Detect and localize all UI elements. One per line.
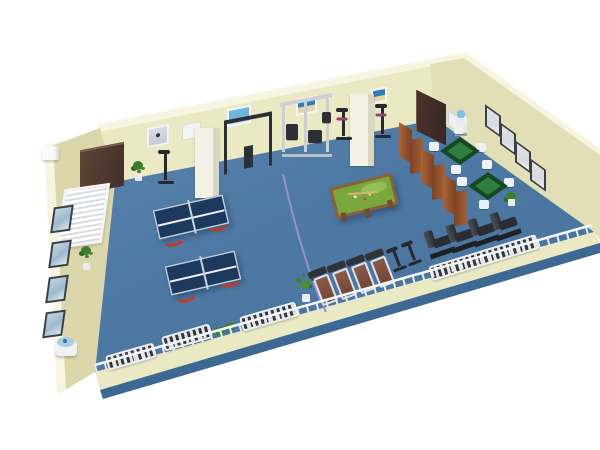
drinking-fountain xyxy=(55,341,77,356)
room-render xyxy=(0,0,600,450)
front-railing xyxy=(0,0,600,450)
palm-plant xyxy=(291,272,319,304)
